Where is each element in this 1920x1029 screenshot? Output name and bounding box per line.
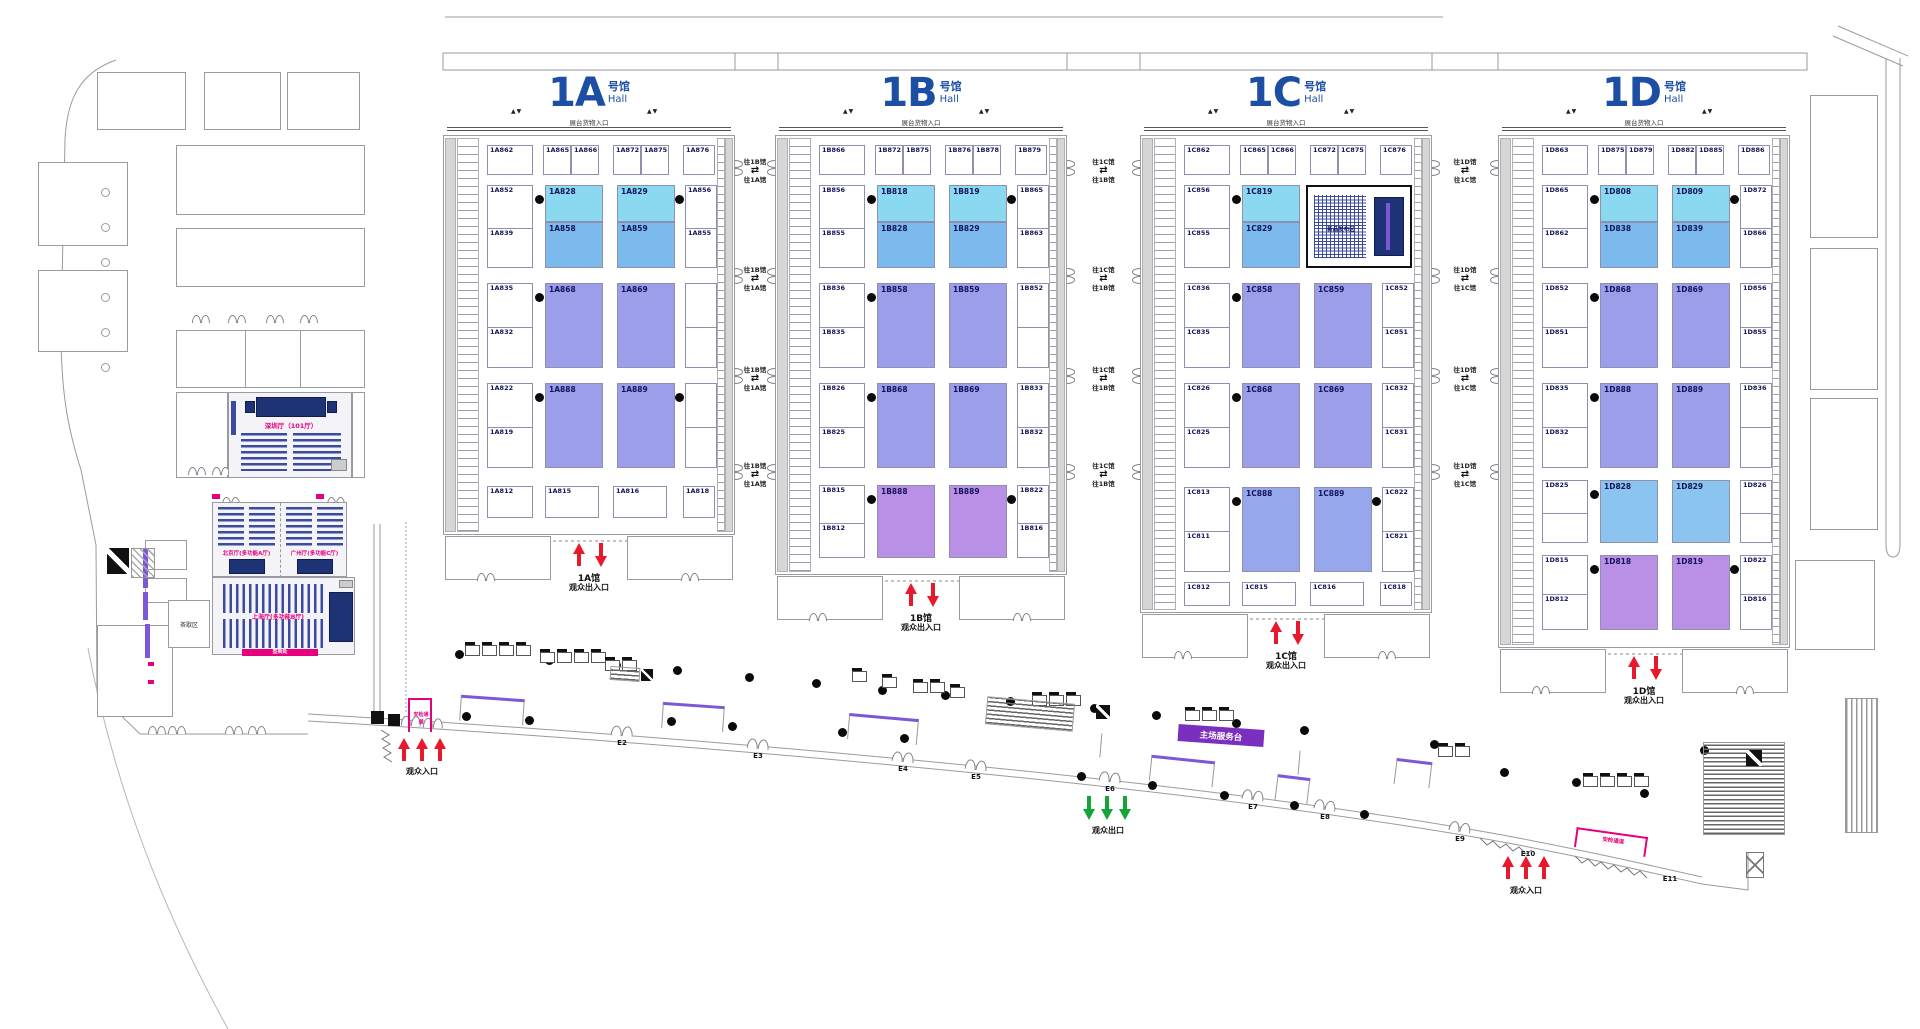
booth-1B822[interactable]: 1B822 (1018, 486, 1048, 523)
door-icon (1067, 464, 1075, 480)
booth-1A862[interactable]: 1A862 (487, 145, 533, 175)
booth-1A852[interactable]: 1A852 (488, 186, 532, 228)
side-booths: 1A8561A855 (685, 185, 717, 268)
booth-1C811[interactable]: 1C811 (1185, 531, 1229, 574)
booth-1B825[interactable]: 1B825 (820, 427, 864, 470)
pillar-dot (812, 679, 821, 688)
door-icon (611, 725, 634, 737)
pillar-dot (867, 495, 876, 504)
booth-1A858[interactable]: 1A858 (545, 222, 603, 268)
service-counter (540, 652, 555, 663)
booth-1B852[interactable]: 1B852 (1018, 284, 1048, 327)
door-icon (1067, 268, 1075, 284)
pillar-dot (535, 195, 544, 204)
booth-1B889[interactable]: 1B889 (949, 485, 1007, 558)
counter-sign (482, 642, 492, 645)
door-icon (1432, 464, 1440, 480)
lift-marks-icon: ▲▼ (511, 108, 531, 115)
booth-1C851[interactable]: 1C851 (1383, 327, 1413, 370)
door-icon (965, 759, 988, 771)
connector-to-left: 往1C馆 (1454, 384, 1476, 392)
service-counter (574, 652, 589, 663)
escalator-ramp (1703, 742, 1785, 835)
hall-subtitle-cn: 号馆 (940, 81, 962, 94)
pillar-dot (535, 293, 544, 302)
booth-1A816[interactable]: 1A816 (613, 486, 667, 518)
door-icon (300, 315, 318, 323)
booth-1B812[interactable]: 1B812 (820, 523, 864, 560)
door-icon (747, 738, 770, 750)
security-gate: 安检通道 (408, 698, 432, 732)
arrow-down-icon (1119, 796, 1131, 821)
booth-1D863[interactable]: 1D863 (1542, 145, 1588, 175)
escalator-icon (1746, 750, 1762, 766)
booth-1A829[interactable]: 1A829 (617, 185, 675, 222)
room-outline (1795, 560, 1875, 650)
booth-1D835[interactable]: 1D835 (1543, 384, 1587, 427)
hall-side-room (1324, 614, 1430, 658)
hall-exit-suffix: 观众出入口 (1604, 695, 1684, 706)
booth-1C813[interactable]: 1C813 (1185, 488, 1229, 531)
booth-1B875[interactable]: 1B875 (903, 145, 931, 175)
counter-sign (557, 649, 567, 652)
booth-1D868[interactable]: 1D868 (1600, 283, 1658, 368)
booth-1D865[interactable]: 1D865 (1543, 186, 1587, 228)
booth-1B832[interactable]: 1B832 (1018, 427, 1048, 470)
booth-1B872[interactable]: 1B872 (875, 145, 903, 175)
counter-sign (1049, 692, 1059, 695)
door-icon (1132, 368, 1140, 384)
feature-stage-area[interactable]: 新品发布区 (1306, 185, 1412, 268)
booth-1D815[interactable]: 1D815 (1543, 556, 1587, 594)
pillar-dot (1152, 711, 1161, 720)
dock-entrance-label: 展台货物入口 (1594, 117, 1694, 127)
entrance-label-E4[interactable]: E4 (889, 765, 917, 773)
visitor-entrance-label: 观众入口 (386, 766, 458, 777)
room-outline (97, 625, 173, 717)
hall-title-text: 1A (548, 76, 605, 110)
side-booths: 1D8221D816 (1740, 555, 1772, 630)
booth-1C852[interactable]: 1C852 (1383, 284, 1413, 327)
booth-1C815[interactable]: 1C815 (1242, 582, 1296, 606)
booth-1B819[interactable]: 1B819 (949, 185, 1007, 222)
door-icon (735, 160, 743, 176)
hall-subtitle-en: Hall (1304, 94, 1326, 106)
door-icon (477, 573, 495, 581)
hall-connector: 往1C馆⇄往1B馆 (1076, 158, 1132, 192)
transfer-arrows-icon: ⇄ (1099, 166, 1107, 176)
side-booths: 1B852 (1017, 283, 1049, 368)
booth-1D872[interactable]: 1D872 (1741, 186, 1771, 228)
hall-title-1C[interactable]: 1C号馆Hall (1206, 76, 1366, 116)
booth-1B878[interactable]: 1B878 (973, 145, 1001, 175)
booth-1B833[interactable]: 1B833 (1018, 384, 1048, 427)
connector-to-left: 往1B馆 (1092, 480, 1114, 488)
perimeter-booths-strip (789, 138, 811, 572)
pillar-dot (1730, 195, 1739, 204)
door-icon (767, 268, 775, 284)
counter-sign (1202, 707, 1212, 710)
booth-1C819[interactable]: 1C819 (1242, 185, 1300, 222)
aisle-banner (661, 702, 725, 732)
booth-1D826[interactable]: 1D826 (1741, 481, 1771, 513)
booth-1A859[interactable]: 1A859 (617, 222, 675, 268)
booth-1A818[interactable]: 1A818 (683, 486, 715, 518)
side-booths: 1C8221C821 (1382, 487, 1414, 572)
transfer-arrows-icon: ⇄ (1461, 470, 1469, 480)
booth-1D812[interactable]: 1D812 (1543, 594, 1587, 632)
hall-connector: 往1D馆⇄往1C馆 (1437, 366, 1493, 400)
booth-1B868[interactable]: 1B868 (877, 383, 935, 468)
entrance-label-E2[interactable]: E2 (608, 739, 636, 747)
booth-1A888[interactable]: 1A888 (545, 383, 603, 468)
booth-1B876[interactable]: 1B876 (945, 145, 973, 175)
arrow-down-icon (927, 583, 939, 608)
booth-1D819[interactable]: 1D819 (1672, 555, 1730, 630)
booth-1D818[interactable]: 1D818 (1600, 555, 1658, 630)
counter-sign (605, 657, 615, 660)
equipment-box (339, 580, 353, 588)
connector-to-left: 往1C馆 (1454, 176, 1476, 184)
hall-subtitle: 号馆Hall (940, 76, 962, 105)
service-corridor (1057, 138, 1065, 572)
side-booths: 1D836 (1740, 383, 1772, 468)
booth-1B879[interactable]: 1B879 (1015, 145, 1047, 175)
loading-dock-line (779, 127, 1063, 131)
booth-1C829[interactable]: 1C829 (1242, 222, 1300, 268)
service-corridor (777, 138, 788, 572)
aisle-banner (1394, 758, 1433, 788)
booth-1A868[interactable]: 1A868 (545, 283, 603, 368)
aisle-banner (459, 695, 525, 725)
service-counter (930, 682, 945, 693)
pillar-dot (1372, 497, 1381, 506)
booth-1D816[interactable]: 1D816 (1741, 594, 1771, 632)
booth-1C816[interactable]: 1C816 (1310, 582, 1364, 606)
pillar-dot (1007, 195, 1016, 204)
booth-1C832[interactable]: 1C832 (1383, 384, 1413, 427)
hall-connector: 往1C馆⇄往1B馆 (1076, 266, 1132, 300)
booth-1C889[interactable]: 1C889 (1314, 487, 1372, 572)
transfer-arrows-icon: ⇄ (1099, 374, 1107, 384)
booth-1C866[interactable]: 1C866 (1268, 145, 1296, 175)
booth-1D832[interactable]: 1D832 (1543, 427, 1587, 470)
booth-1A889[interactable]: 1A889 (617, 383, 675, 468)
pillar-dot (867, 393, 876, 402)
booth-1A872[interactable]: 1A872 (613, 145, 641, 175)
booth-1C821[interactable]: 1C821 (1383, 531, 1413, 574)
column-circle (101, 293, 110, 302)
room-outline (38, 162, 128, 246)
booth-1C868[interactable]: 1C868 (1242, 383, 1300, 468)
service-counter (1438, 746, 1453, 757)
booth-1C862[interactable]: 1C862 (1184, 145, 1230, 175)
arrow-down-icon (1083, 796, 1095, 821)
door-icon (188, 467, 206, 475)
booth-1C872[interactable]: 1C872 (1310, 145, 1338, 175)
booth-1D808[interactable]: 1D808 (1600, 185, 1658, 222)
booth-1B859[interactable]: 1B859 (949, 283, 1007, 368)
booth-1C856[interactable]: 1C856 (1185, 186, 1229, 228)
booth-1A815[interactable]: 1A815 (545, 486, 599, 518)
booth-1D886[interactable]: 1D886 (1738, 145, 1770, 175)
booth-1D879[interactable]: 1D879 (1626, 145, 1654, 175)
booth-1B866[interactable]: 1B866 (819, 145, 865, 175)
vertical-banner (143, 592, 148, 620)
booth-1C865[interactable]: 1C865 (1240, 145, 1268, 175)
counter-sign (1455, 743, 1465, 746)
escalator-block (107, 548, 129, 574)
booth-1A875[interactable]: 1A875 (641, 145, 669, 175)
stage (256, 397, 326, 417)
facility-mark (148, 662, 154, 666)
entrance-mark (316, 494, 324, 499)
connector-to-left: 往1C馆 (1454, 480, 1476, 488)
service-counter (1202, 710, 1217, 721)
pillar-dot (1730, 565, 1739, 574)
counter-sign (1219, 707, 1229, 710)
booth-1D888[interactable]: 1D888 (1600, 383, 1658, 468)
room-outline (287, 72, 360, 130)
booth-1C831[interactable]: 1C831 (1383, 427, 1413, 470)
side-booths: 1B8261B825 (819, 383, 865, 468)
booth-1A828[interactable]: 1A828 (545, 185, 603, 222)
service-corridor (1422, 138, 1430, 610)
booth-1A856[interactable]: 1A856 (686, 186, 716, 228)
booth-1A835[interactable]: 1A835 (488, 284, 532, 327)
entrance-label-E9[interactable]: E9 (1446, 835, 1474, 843)
booth-1D852[interactable]: 1D852 (1543, 284, 1587, 327)
stage-wing (245, 401, 255, 413)
booth-1B836[interactable]: 1B836 (820, 284, 864, 327)
booth-1C869[interactable]: 1C869 (1314, 383, 1372, 468)
counter-sign (574, 649, 584, 652)
door-icon (1490, 464, 1498, 480)
signin-bar[interactable]: 签到处 (242, 649, 318, 656)
booth-1A866[interactable]: 1A866 (571, 145, 599, 175)
hall-subtitle-en: Hall (1664, 94, 1686, 106)
booth-1B863[interactable]: 1B863 (1018, 228, 1048, 270)
service-counter (499, 645, 514, 656)
booth-1D828[interactable]: 1D828 (1600, 480, 1658, 543)
booth-1B869[interactable]: 1B869 (949, 383, 1007, 468)
entrance-label-E5[interactable]: E5 (962, 773, 990, 781)
booth-1A865[interactable]: 1A865 (543, 145, 571, 175)
arrow-down-icon (1101, 796, 1113, 821)
service-counter (591, 652, 606, 663)
booth-1D839[interactable]: 1D839 (1672, 222, 1730, 268)
booth-1A839[interactable]: 1A839 (488, 228, 532, 270)
pillar-dot (525, 716, 534, 725)
lift-marks-icon: ▲▼ (1344, 108, 1364, 115)
service-counter (1600, 776, 1615, 787)
door-icon (1432, 368, 1440, 384)
booth-1B818[interactable]: 1B818 (877, 185, 935, 222)
lift-marks-icon: ▲▼ (979, 108, 999, 115)
hall-connector: 往1C馆⇄往1B馆 (1076, 366, 1132, 400)
connector-to-left: 往1A馆 (744, 176, 767, 184)
hall-subtitle-en: Hall (940, 94, 962, 106)
booth-1D875[interactable]: 1D875 (1598, 145, 1626, 175)
door-icon (148, 726, 166, 734)
booth-1B815[interactable]: 1B815 (820, 486, 864, 523)
connector-to-left: 往1B馆 (1092, 284, 1114, 292)
entrance-label-E8[interactable]: E8 (1311, 813, 1339, 821)
booth-1D885[interactable]: 1D885 (1696, 145, 1724, 175)
dock-entrance-label: 展台货物入口 (539, 117, 639, 127)
booth-1C875[interactable]: 1C875 (1338, 145, 1366, 175)
booth-1A876[interactable]: 1A876 (683, 145, 715, 175)
booth-1B855[interactable]: 1B855 (820, 228, 864, 270)
hall-side-room (627, 536, 733, 580)
booth-1B856[interactable]: 1B856 (820, 186, 864, 228)
arrow-up-icon (398, 738, 410, 763)
dock-entrance-label: 展台货物入口 (1236, 117, 1336, 127)
side-booths: 1D8721D866 (1740, 185, 1772, 268)
booth-1D869[interactable]: 1D869 (1672, 283, 1730, 368)
hall-title-text: 1D (1602, 76, 1661, 110)
hall-label: 广州厅(多功能C厅) (281, 549, 348, 557)
pillar-dot (728, 722, 737, 731)
transfer-arrows-icon: ⇄ (1461, 274, 1469, 284)
booth-1C855[interactable]: 1C855 (1185, 228, 1229, 270)
hall-title-1A[interactable]: 1A号馆Hall (509, 76, 669, 116)
perimeter-booths-strip (1049, 138, 1057, 572)
room-divider (300, 330, 301, 388)
booth-1B826[interactable]: 1B826 (820, 384, 864, 427)
room-outline (352, 392, 365, 478)
hall-side-room (445, 536, 551, 580)
booth-1A832[interactable]: 1A832 (488, 327, 532, 370)
hall-title-1D[interactable]: 1D号馆Hall (1564, 76, 1724, 116)
counter-sign (465, 642, 475, 645)
counter-sign (1634, 773, 1644, 776)
booth-1D838[interactable]: 1D838 (1600, 222, 1658, 268)
side-booths: 1C8261C825 (1184, 383, 1230, 468)
booth-1A822[interactable]: 1A822 (488, 384, 532, 427)
side-booths: 1D8561D855 (1740, 283, 1772, 368)
pillar-dot (1300, 726, 1309, 735)
visitor-exit-label: 观众出口 (1072, 825, 1144, 836)
booth-1A812[interactable]: 1A812 (487, 486, 533, 518)
entrance-label-E11[interactable]: E11 (1656, 875, 1684, 883)
booth-1C826[interactable]: 1C826 (1185, 384, 1229, 427)
seat-cols (223, 619, 323, 648)
multifunction-halls: 北京厅(多功能A厅)广州厅(多功能C厅) (212, 502, 347, 577)
service-counter (950, 687, 965, 698)
booth-1C888[interactable]: 1C888 (1242, 487, 1300, 572)
column-circle (101, 328, 110, 337)
booth-1C825[interactable]: 1C825 (1185, 427, 1229, 470)
stage (329, 592, 353, 642)
entrance-label-E3[interactable]: E3 (744, 752, 772, 760)
booth-1B858[interactable]: 1B858 (877, 283, 935, 368)
booth-1A855[interactable]: 1A855 (686, 228, 716, 270)
counter-sign (852, 668, 862, 671)
booth-1D829[interactable]: 1D829 (1672, 480, 1730, 543)
service-counter (1617, 776, 1632, 787)
room-divider (280, 503, 281, 578)
escalator-ramp (610, 666, 641, 682)
booth-1C836[interactable]: 1C836 (1185, 284, 1229, 327)
booth-1C835[interactable]: 1C835 (1185, 327, 1229, 370)
control-box (331, 459, 347, 471)
booth-1C812[interactable]: 1C812 (1184, 582, 1230, 606)
booth-1B829[interactable]: 1B829 (949, 222, 1007, 268)
booth-1A869[interactable]: 1A869 (617, 283, 675, 368)
booth-1D889[interactable]: 1D889 (1672, 383, 1730, 468)
conference-hall-101: 深圳厅（101厅） (228, 392, 352, 478)
pillar-dot (1148, 781, 1157, 790)
counter-sign (1438, 743, 1448, 746)
hall-title-1B[interactable]: 1B号馆Hall (841, 76, 1001, 116)
counter-sign (1185, 707, 1195, 710)
entrance-label-E6[interactable]: E6 (1096, 785, 1124, 793)
hall-exit-suffix: 观众出入口 (549, 582, 629, 593)
service-corridor (1500, 138, 1511, 645)
room-outline (38, 270, 128, 352)
booth-1B888[interactable]: 1B888 (877, 485, 935, 558)
booth-1D882[interactable]: 1D882 (1668, 145, 1696, 175)
loading-dock-line (447, 127, 731, 131)
booth (1741, 427, 1771, 470)
pillar-dot (455, 650, 464, 659)
door-icon (1490, 160, 1498, 176)
booth-1D866[interactable]: 1D866 (1741, 228, 1771, 270)
counter-sign (930, 679, 940, 682)
counter-sign (882, 674, 892, 677)
booth-1D822[interactable]: 1D822 (1741, 556, 1771, 594)
booth-1B865[interactable]: 1B865 (1018, 186, 1048, 228)
booth-1C859[interactable]: 1C859 (1314, 283, 1372, 368)
room-outline (204, 72, 281, 130)
escalator-icon (641, 669, 653, 681)
booth-1D825[interactable]: 1D825 (1543, 481, 1587, 513)
entrance-label-E7[interactable]: E7 (1239, 803, 1267, 811)
service-counter (1634, 776, 1649, 787)
booth-1C822[interactable]: 1C822 (1383, 488, 1413, 531)
transfer-arrows-icon: ⇄ (1461, 166, 1469, 176)
structure-column (388, 714, 400, 726)
loading-dock-line (1502, 127, 1786, 131)
booth-1D862[interactable]: 1D862 (1543, 228, 1587, 270)
booth-1D851[interactable]: 1D851 (1543, 327, 1587, 370)
door-icon (1174, 651, 1192, 659)
booth-1B816[interactable]: 1B816 (1018, 523, 1048, 560)
booth-1B835[interactable]: 1B835 (820, 327, 864, 370)
pillar-dot (1007, 495, 1016, 504)
side-booths (685, 283, 717, 368)
connector-to-left: 往1C馆 (1454, 284, 1476, 292)
booth-1D855[interactable]: 1D855 (1741, 327, 1771, 370)
booth-1C818[interactable]: 1C818 (1380, 582, 1412, 606)
booth-1D856[interactable]: 1D856 (1741, 284, 1771, 327)
dock-entrance-label: 展台货物入口 (871, 117, 971, 127)
booth-1C876[interactable]: 1C876 (1380, 145, 1412, 175)
hall-subtitle-cn: 号馆 (608, 81, 630, 94)
booth-1A819[interactable]: 1A819 (488, 427, 532, 470)
booth-1D809[interactable]: 1D809 (1672, 185, 1730, 222)
connector-to-left: 往1A馆 (744, 480, 767, 488)
booth-1D836[interactable]: 1D836 (1741, 384, 1771, 427)
booth-1C858[interactable]: 1C858 (1242, 283, 1300, 368)
service-corridor (1780, 138, 1788, 645)
door-icon (192, 315, 210, 323)
booth-1B828[interactable]: 1B828 (877, 222, 935, 268)
arrow-up-icon (434, 738, 446, 763)
door-icon (1490, 268, 1498, 284)
pillar-dot (1590, 565, 1599, 574)
